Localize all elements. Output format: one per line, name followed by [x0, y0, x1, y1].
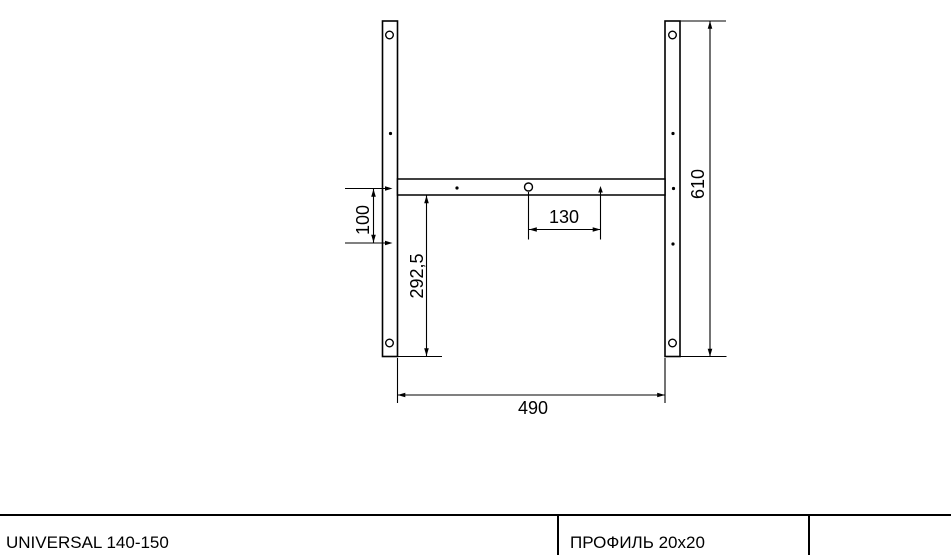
hole-marker	[525, 183, 533, 191]
dimension-490: 490	[398, 358, 666, 418]
dimension-label-130: 130	[549, 207, 579, 227]
hole-marker	[386, 31, 394, 39]
title-block-divider	[557, 516, 559, 555]
drawing-page: 100 292,5 130 490	[0, 0, 951, 555]
hole-center-dot	[671, 242, 674, 245]
hole-center-dot	[671, 132, 674, 135]
model-name: UNIVERSAL 140-150	[6, 533, 169, 553]
crossbar	[398, 179, 666, 195]
hole-center-dot	[672, 187, 675, 190]
hole-marker	[386, 339, 394, 347]
profile-spec: ПРОФИЛЬ 20x20	[570, 533, 705, 553]
dimension-label-292-5: 292,5	[407, 253, 427, 298]
title-block: UNIVERSAL 140-150 ПРОФИЛЬ 20x20	[0, 514, 951, 555]
dimension-label-490: 490	[518, 398, 548, 418]
right-upright	[665, 21, 680, 357]
hole-marker	[669, 31, 677, 39]
hole-center-dot	[389, 132, 392, 135]
hole-center-dot	[455, 186, 458, 189]
title-block-divider	[808, 516, 810, 555]
dimension-label-610: 610	[688, 169, 708, 199]
technical-drawing: 100 292,5 130 490	[0, 0, 951, 555]
dimension-292-5: 292,5	[398, 196, 442, 357]
dimension-label-100: 100	[353, 205, 373, 235]
hole-marker	[669, 339, 677, 347]
